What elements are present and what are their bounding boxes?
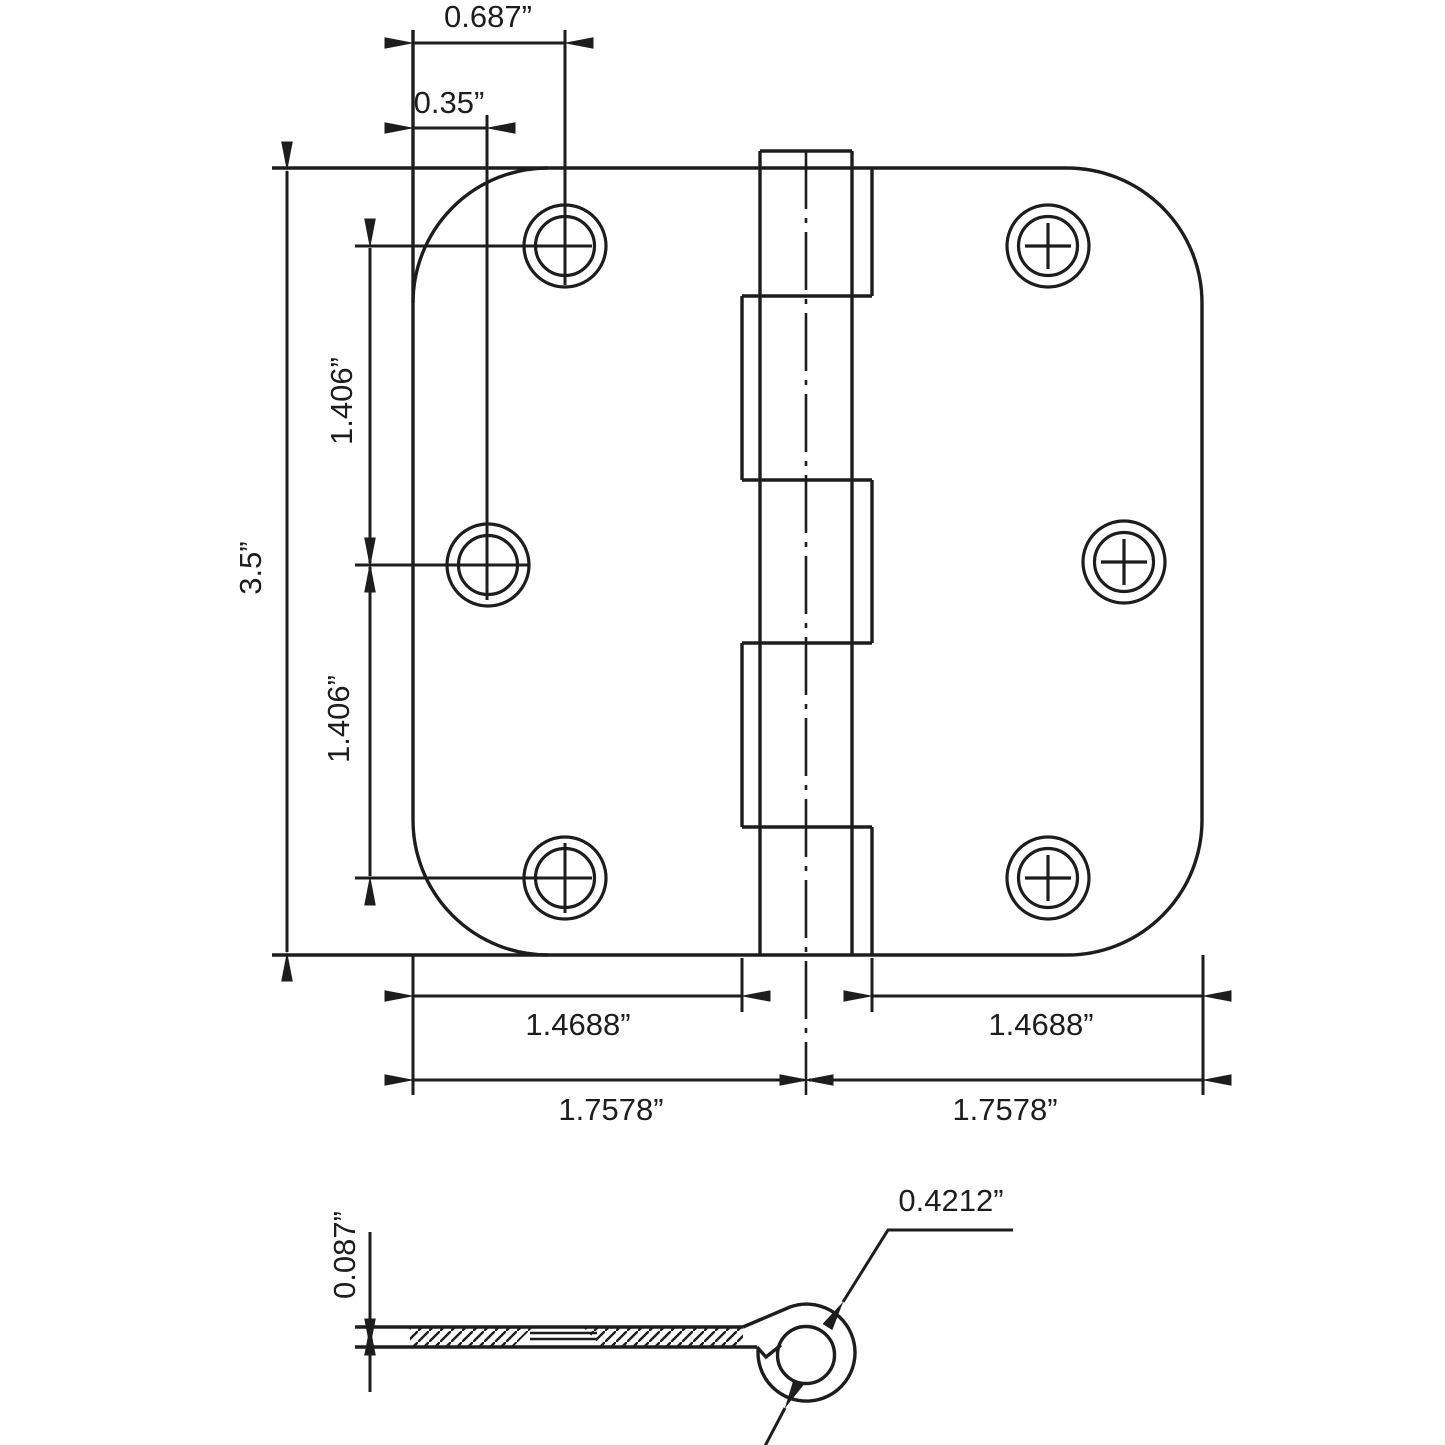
dim-label-leaf-flat-right: 1.4688”: [988, 1007, 1093, 1042]
leaf-section: [355, 1327, 757, 1347]
technical-drawing-canvas: 0.687” 0.35” 3.5” 1.406” 1.406” 1.4688” …: [0, 0, 1445, 1445]
hinge-face-view: 0.687” 0.35” 3.5” 1.406” 1.406” 1.4688” …: [233, 0, 1203, 1127]
hinge-drawing: 0.687” 0.35” 3.5” 1.406” 1.406” 1.4688” …: [0, 0, 1445, 1445]
dim-label-leaf-thickness: 0.087”: [327, 1211, 362, 1299]
dim-label-hole-pitch-upper: 1.406”: [324, 357, 359, 445]
leaf-outline: [272, 30, 1202, 955]
screw-hole-top-right: [1007, 205, 1089, 287]
dim-label-half-span-left: 1.7578”: [558, 1092, 663, 1127]
pin-pointer-arrow: [765, 1408, 785, 1445]
knuckle-diameter-leader: 0.4212”: [843, 1183, 1013, 1302]
thickness-dimension: 0.087”: [327, 1211, 370, 1392]
dim-label-top-hole-inset: 0.687”: [444, 0, 532, 34]
extension-lines: [355, 30, 1203, 1095]
hinge-edge-view: 0.087” 0.4212”: [327, 1183, 1013, 1445]
dim-label-half-span-right: 1.7578”: [952, 1092, 1057, 1127]
dim-label-leaf-flat-left: 1.4688”: [525, 1007, 630, 1042]
dim-label-leaf-height: 3.5”: [233, 541, 268, 594]
dim-label-hole-pitch-lower: 1.406”: [321, 675, 356, 763]
curled-knuckle: [743, 1304, 855, 1401]
screw-hole-mid-right: [1083, 521, 1165, 603]
screw-hole-bottom-right: [1007, 837, 1089, 919]
dim-label-mid-hole-inset: 0.35”: [414, 85, 485, 120]
dim-label-knuckle-diameter: 0.4212”: [898, 1183, 1003, 1218]
dimension-lines: [287, 43, 1202, 1080]
